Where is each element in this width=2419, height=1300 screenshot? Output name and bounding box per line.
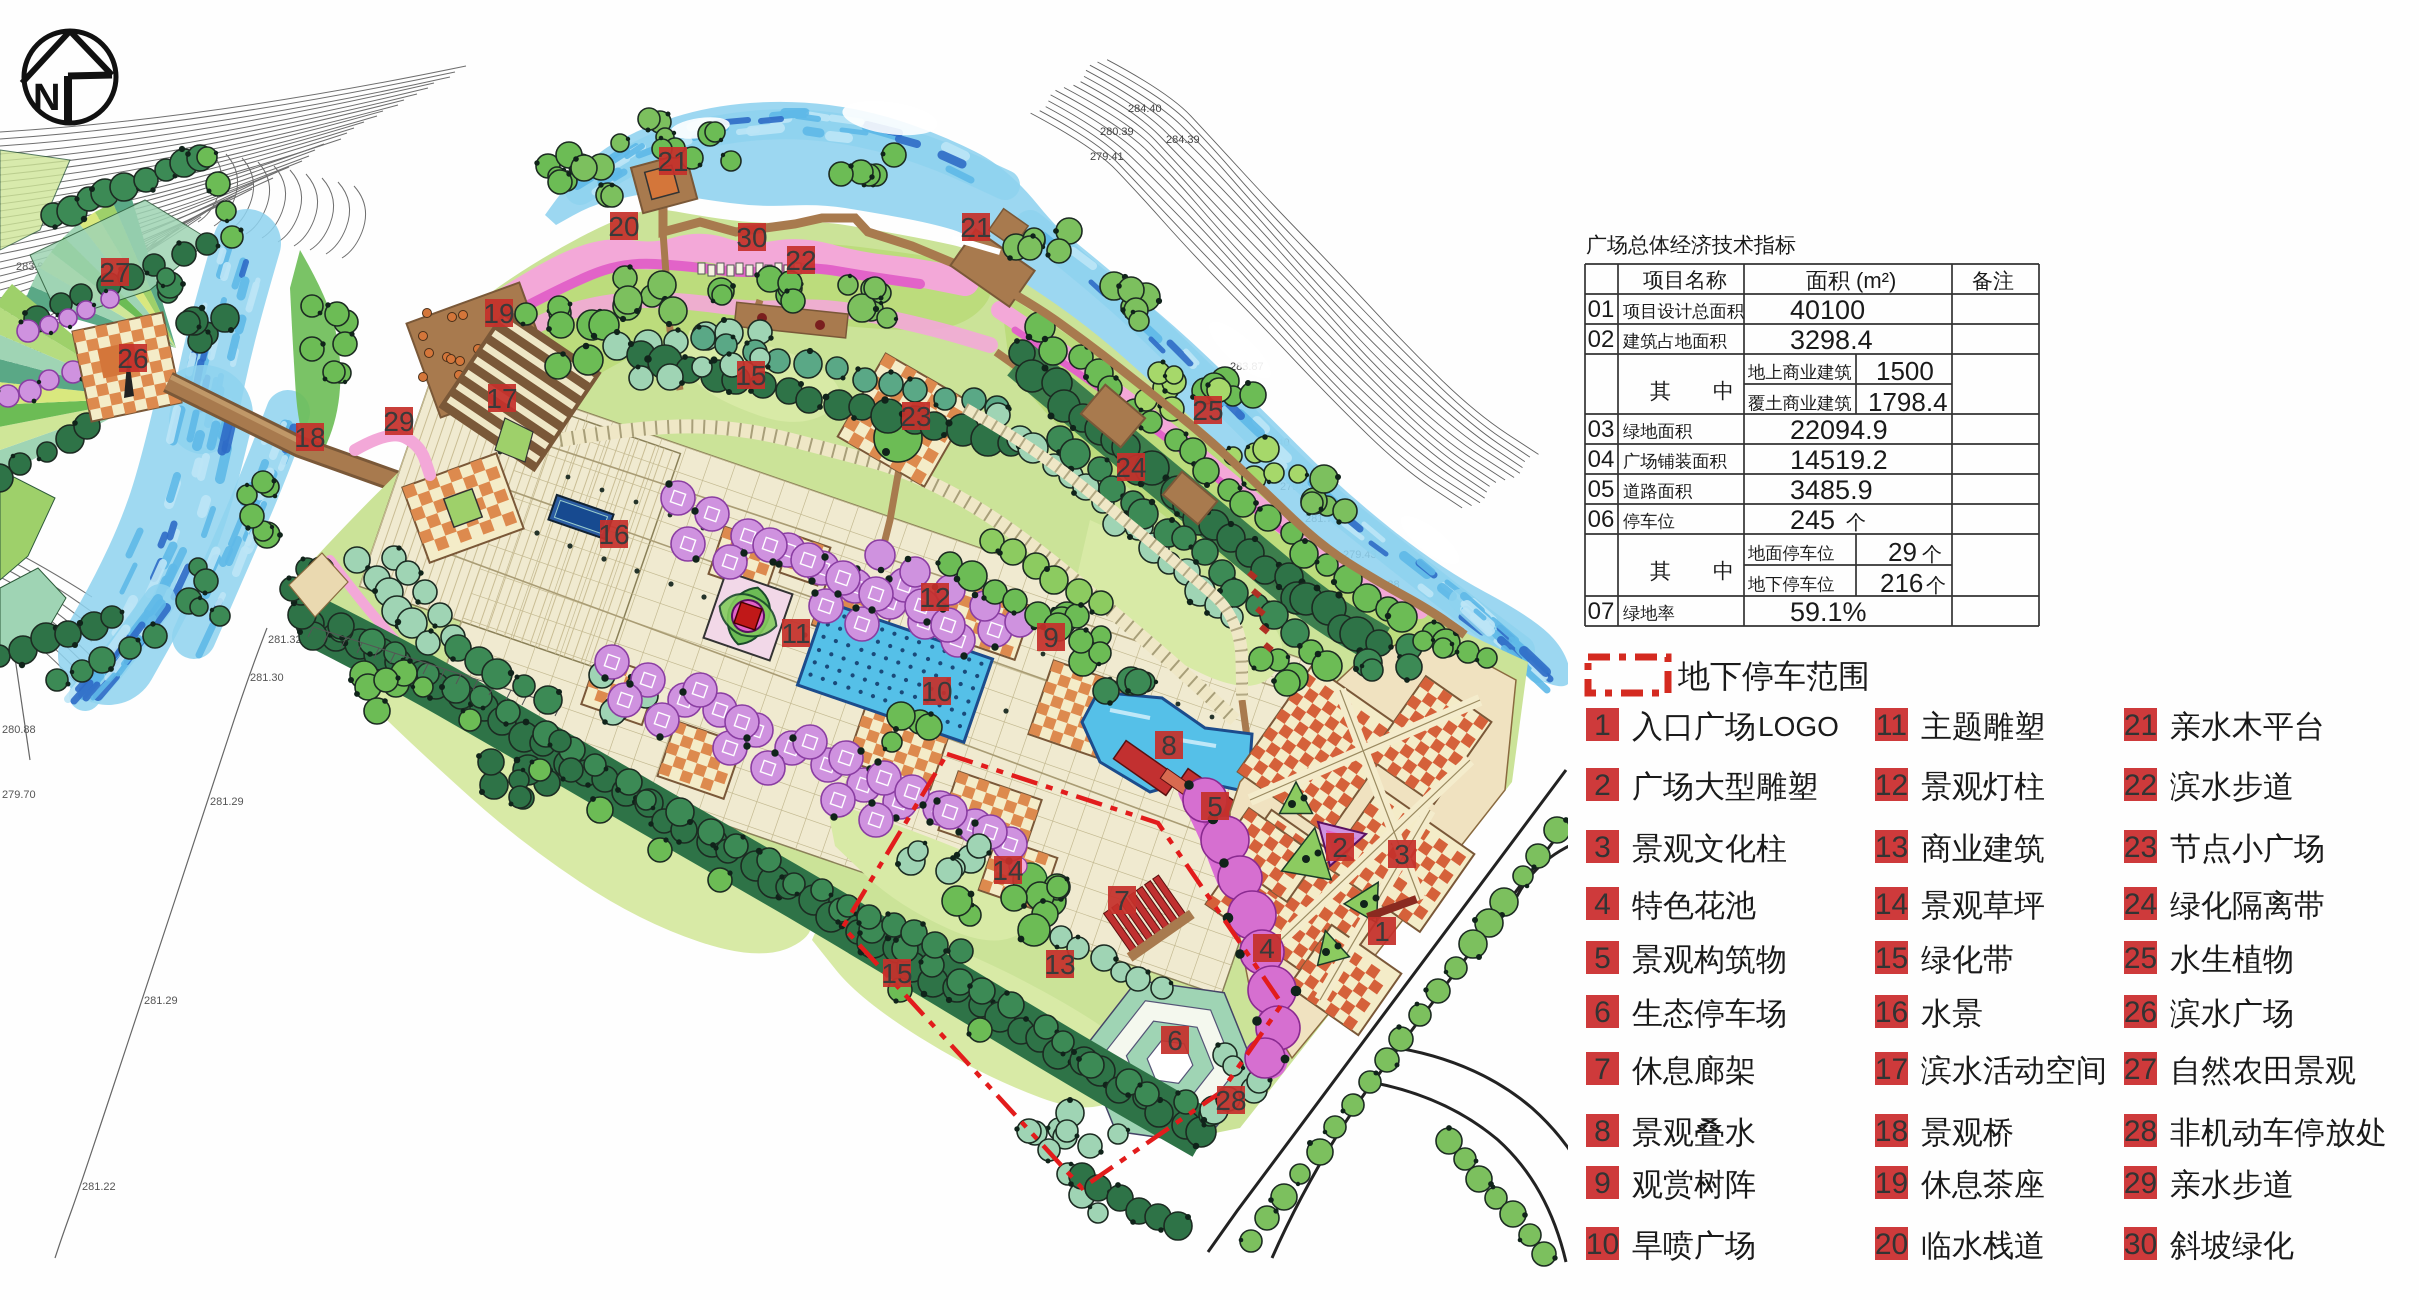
svg-text:3: 3 — [1594, 831, 1611, 864]
svg-text:1798.4: 1798.4 — [1868, 387, 1948, 417]
svg-text:22: 22 — [2124, 769, 2157, 802]
svg-text:3: 3 — [1394, 839, 1410, 870]
svg-text:15: 15 — [735, 360, 766, 391]
svg-text:19: 19 — [1875, 1167, 1908, 1200]
svg-text:14519.2: 14519.2 — [1790, 445, 1888, 475]
svg-text:19: 19 — [483, 298, 514, 329]
svg-text:5: 5 — [1594, 942, 1611, 975]
svg-text:11: 11 — [1876, 709, 1907, 742]
svg-text:1: 1 — [1594, 709, 1611, 742]
svg-text:8: 8 — [1594, 1115, 1611, 1148]
svg-text:1: 1 — [1374, 916, 1390, 947]
svg-text:29: 29 — [1888, 537, 1917, 567]
svg-text:22094.9: 22094.9 — [1790, 415, 1888, 445]
svg-text:12: 12 — [1875, 769, 1908, 802]
svg-text:21: 21 — [657, 146, 688, 177]
svg-text:1500: 1500 — [1876, 356, 1934, 386]
svg-text:245: 245 — [1790, 505, 1835, 535]
svg-text:02: 02 — [1588, 326, 1615, 353]
svg-text:3298.4: 3298.4 — [1790, 325, 1873, 355]
svg-text:22: 22 — [785, 245, 816, 276]
svg-text:07: 07 — [1588, 598, 1615, 625]
svg-text:280.88: 280.88 — [2, 724, 36, 736]
svg-text:25: 25 — [1192, 395, 1223, 426]
svg-text:16: 16 — [1875, 996, 1908, 1029]
svg-text:25: 25 — [2124, 942, 2157, 975]
svg-text:28: 28 — [2124, 1115, 2157, 1148]
svg-text:26: 26 — [2124, 996, 2157, 1029]
svg-text:281.29: 281.29 — [144, 995, 178, 1007]
svg-text:N: N — [33, 77, 60, 119]
svg-text:4: 4 — [1259, 933, 1275, 964]
svg-text:281.32: 281.32 — [268, 634, 302, 646]
svg-text:17: 17 — [486, 383, 517, 414]
svg-text:(m²): (m²) — [1856, 268, 1896, 293]
svg-text:03: 03 — [1588, 416, 1615, 443]
svg-text:59.1%: 59.1% — [1790, 597, 1867, 627]
svg-text:12: 12 — [919, 582, 950, 613]
svg-text:3485.9: 3485.9 — [1790, 475, 1873, 505]
svg-text:6: 6 — [1167, 1025, 1183, 1056]
svg-text:284.40: 284.40 — [1128, 103, 1162, 115]
svg-text:29: 29 — [2124, 1167, 2157, 1200]
svg-text:9: 9 — [1043, 622, 1059, 653]
svg-text:280.39: 280.39 — [1100, 126, 1134, 138]
svg-text:24: 24 — [2124, 888, 2157, 921]
svg-text:2: 2 — [1594, 769, 1611, 802]
svg-text:LOGO: LOGO — [1758, 711, 1839, 742]
svg-text:279.41: 279.41 — [1090, 151, 1124, 163]
svg-text:26: 26 — [117, 343, 148, 374]
svg-text:10: 10 — [1586, 1228, 1619, 1261]
svg-text:8: 8 — [1161, 730, 1177, 761]
svg-text:30: 30 — [2124, 1228, 2157, 1261]
svg-text:21: 21 — [960, 212, 991, 243]
svg-text:6: 6 — [1594, 996, 1611, 1029]
svg-text:04: 04 — [1588, 446, 1615, 473]
svg-text:21: 21 — [2124, 709, 2157, 742]
svg-text:15: 15 — [881, 958, 912, 989]
svg-text:11: 11 — [781, 618, 810, 649]
svg-text:16: 16 — [598, 519, 629, 550]
svg-text:284.39: 284.39 — [1166, 134, 1200, 146]
svg-text:27: 27 — [99, 257, 130, 288]
svg-text:14: 14 — [1875, 888, 1908, 921]
svg-text:7: 7 — [1594, 1053, 1611, 1086]
svg-text:30: 30 — [736, 222, 767, 253]
svg-text:23: 23 — [2124, 831, 2157, 864]
svg-text:01: 01 — [1588, 296, 1615, 323]
svg-text:14: 14 — [992, 855, 1023, 886]
svg-text:2: 2 — [1332, 832, 1348, 863]
svg-text:18: 18 — [1875, 1115, 1908, 1148]
svg-text:40100: 40100 — [1790, 295, 1865, 325]
svg-text:06: 06 — [1588, 506, 1615, 533]
svg-text:20: 20 — [1875, 1228, 1908, 1261]
svg-text:281.29: 281.29 — [210, 796, 244, 808]
svg-text:216: 216 — [1880, 568, 1923, 598]
svg-text:15: 15 — [1875, 942, 1908, 975]
svg-text:23: 23 — [900, 401, 931, 432]
svg-text:7: 7 — [1114, 885, 1130, 916]
svg-text:9: 9 — [1594, 1167, 1611, 1200]
svg-text:29: 29 — [383, 406, 414, 437]
svg-text:4: 4 — [1594, 888, 1611, 921]
svg-text:17: 17 — [1875, 1053, 1908, 1086]
svg-text:13: 13 — [1875, 831, 1908, 864]
svg-text:10: 10 — [921, 676, 952, 707]
svg-text:05: 05 — [1588, 476, 1615, 503]
svg-text:281.30: 281.30 — [250, 672, 284, 684]
svg-text:20: 20 — [608, 211, 639, 242]
svg-text:13: 13 — [1044, 949, 1075, 980]
svg-text:5: 5 — [1207, 791, 1223, 822]
svg-text:281.22: 281.22 — [82, 1181, 116, 1193]
svg-text:24: 24 — [1115, 452, 1146, 483]
svg-text:28: 28 — [1215, 1085, 1246, 1116]
svg-text:279.70: 279.70 — [2, 789, 36, 801]
svg-text:27: 27 — [2124, 1053, 2157, 1086]
svg-text:18: 18 — [294, 422, 325, 453]
